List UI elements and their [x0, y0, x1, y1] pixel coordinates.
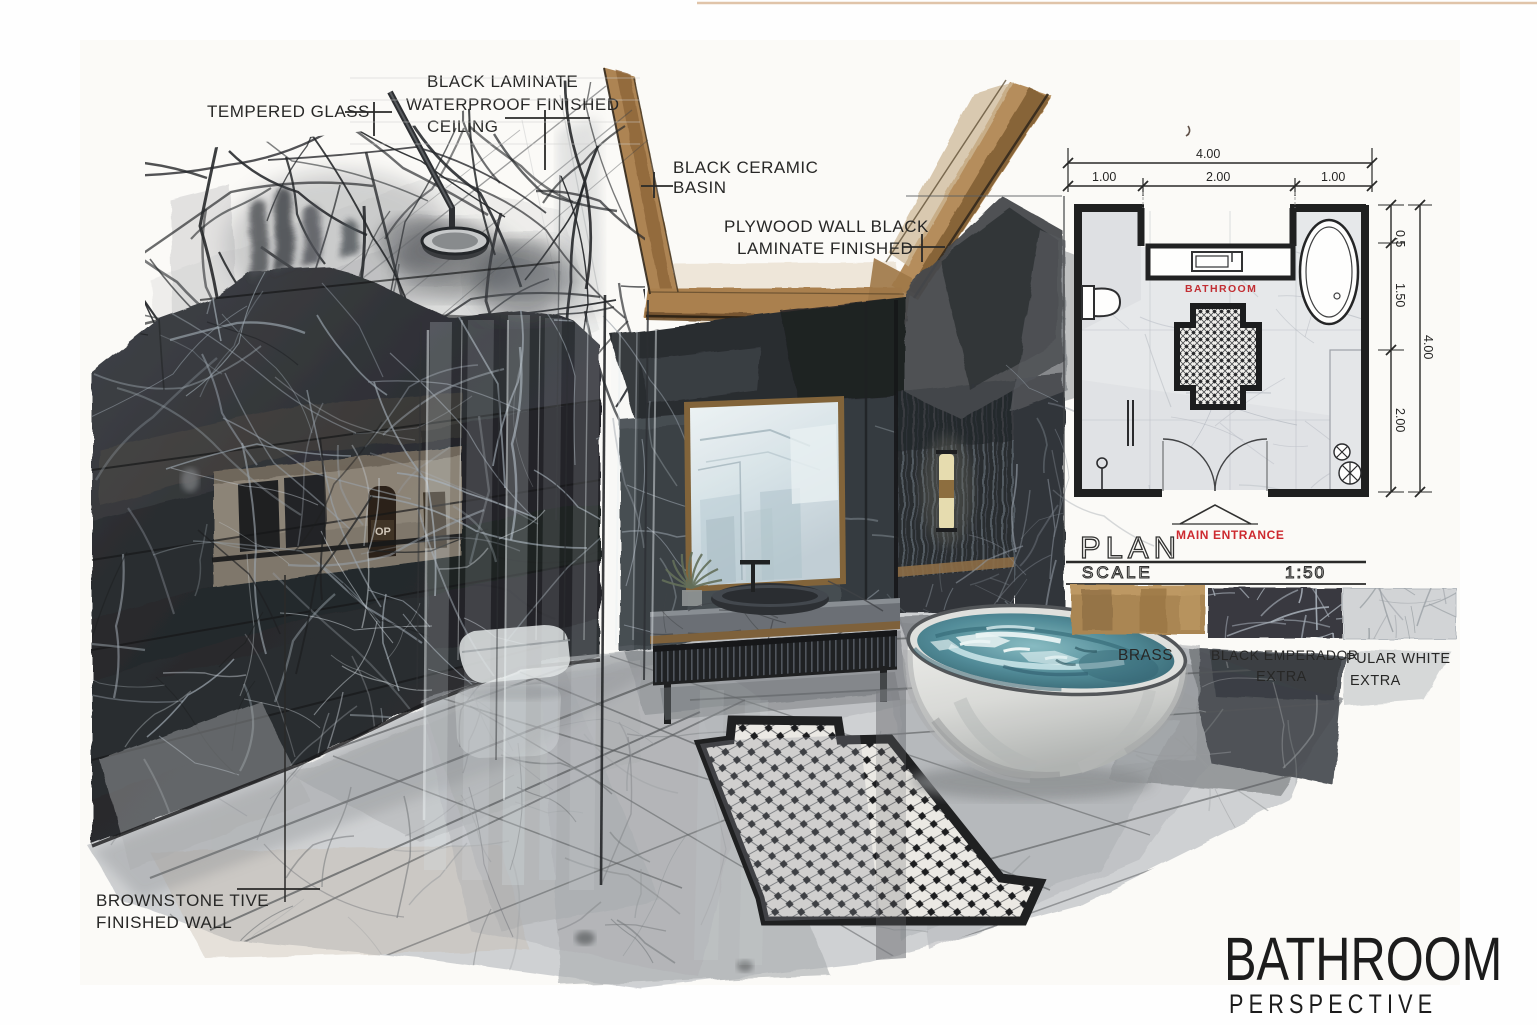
svg-text:BATHROOM: BATHROOM — [1224, 925, 1502, 993]
svg-text:PERSPECTIVE: PERSPECTIVE — [1229, 990, 1437, 1020]
